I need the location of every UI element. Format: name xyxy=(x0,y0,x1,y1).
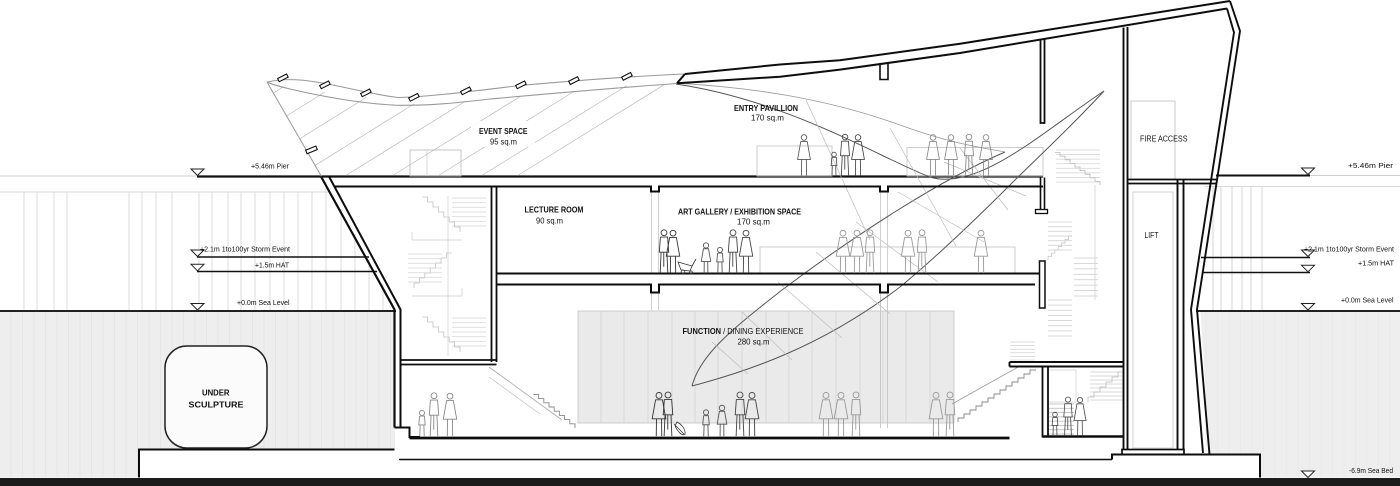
svg-text:+0.0m Sea Level: +0.0m Sea Level xyxy=(1341,296,1394,305)
svg-text:UNDER: UNDER xyxy=(202,388,230,398)
svg-text:+0.0m Sea Level: +0.0m Sea Level xyxy=(237,298,290,307)
svg-text:+5.46m Pier: +5.46m Pier xyxy=(1348,161,1394,170)
svg-text:90 sq.m: 90 sq.m xyxy=(536,217,563,226)
svg-text:+2.1m 1to100yr Storm Event: +2.1m 1to100yr Storm Event xyxy=(1304,245,1395,254)
svg-text:FUNCTION / DINING EXPERIENCE: FUNCTION / DINING EXPERIENCE xyxy=(683,326,804,336)
svg-text:+5.46m Pier: +5.46m Pier xyxy=(251,162,289,171)
svg-text:95 sq.m: 95 sq.m xyxy=(490,138,517,147)
svg-text:EVENT SPACE: EVENT SPACE xyxy=(479,126,528,136)
svg-text:+1.5m HAT: +1.5m HAT xyxy=(255,261,289,270)
svg-text:ENTRY PAVILLION: ENTRY PAVILLION xyxy=(734,103,798,113)
svg-text:+1.5m HAT: +1.5m HAT xyxy=(1358,259,1394,268)
svg-text:170 sq.m: 170 sq.m xyxy=(737,218,770,227)
svg-text:170 sq.m: 170 sq.m xyxy=(751,114,784,123)
svg-text:ART GALLERY / EXHIBITION SPACE: ART GALLERY / EXHIBITION SPACE xyxy=(678,207,801,217)
svg-text:LIFT: LIFT xyxy=(1145,230,1159,240)
svg-text:FIRE ACCESS: FIRE ACCESS xyxy=(1140,134,1188,144)
svg-text:SCULPTURE: SCULPTURE xyxy=(189,400,244,410)
svg-text:+2.1m 1to100yr Storm Event: +2.1m 1to100yr Storm Event xyxy=(200,245,291,254)
svg-text:280 sq.m: 280 sq.m xyxy=(738,338,770,347)
svg-text:LECTURE ROOM: LECTURE ROOM xyxy=(525,205,584,215)
svg-text:-6.9m Sea Bed: -6.9m Sea Bed xyxy=(1349,466,1393,475)
